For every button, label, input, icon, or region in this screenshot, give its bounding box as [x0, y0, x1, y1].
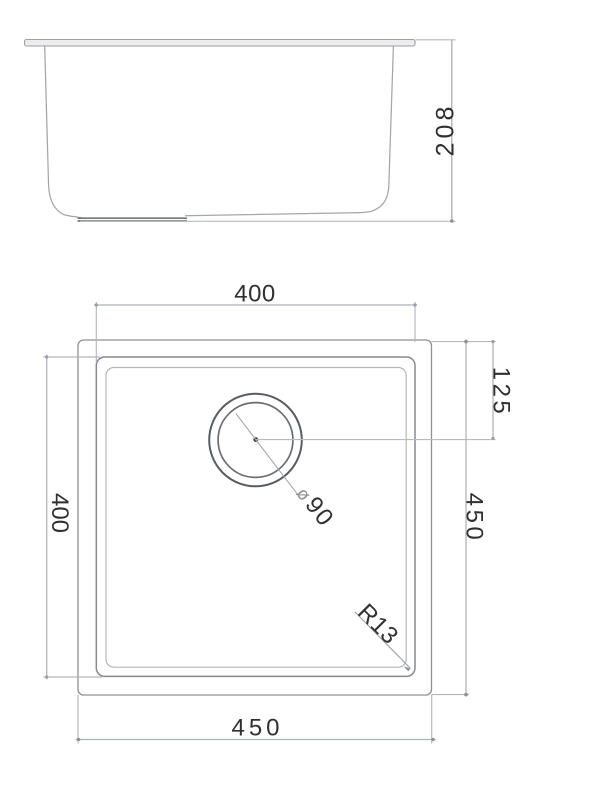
- svg-text:450: 450: [231, 715, 283, 742]
- svg-text:450: 450: [461, 493, 488, 544]
- svg-text:208: 208: [432, 103, 460, 157]
- svg-text:R13: R13: [352, 599, 403, 650]
- svg-text:400: 400: [234, 281, 276, 308]
- svg-text:400: 400: [46, 493, 73, 533]
- svg-text:ø90: ø90: [291, 481, 340, 533]
- svg-text:125: 125: [488, 367, 515, 418]
